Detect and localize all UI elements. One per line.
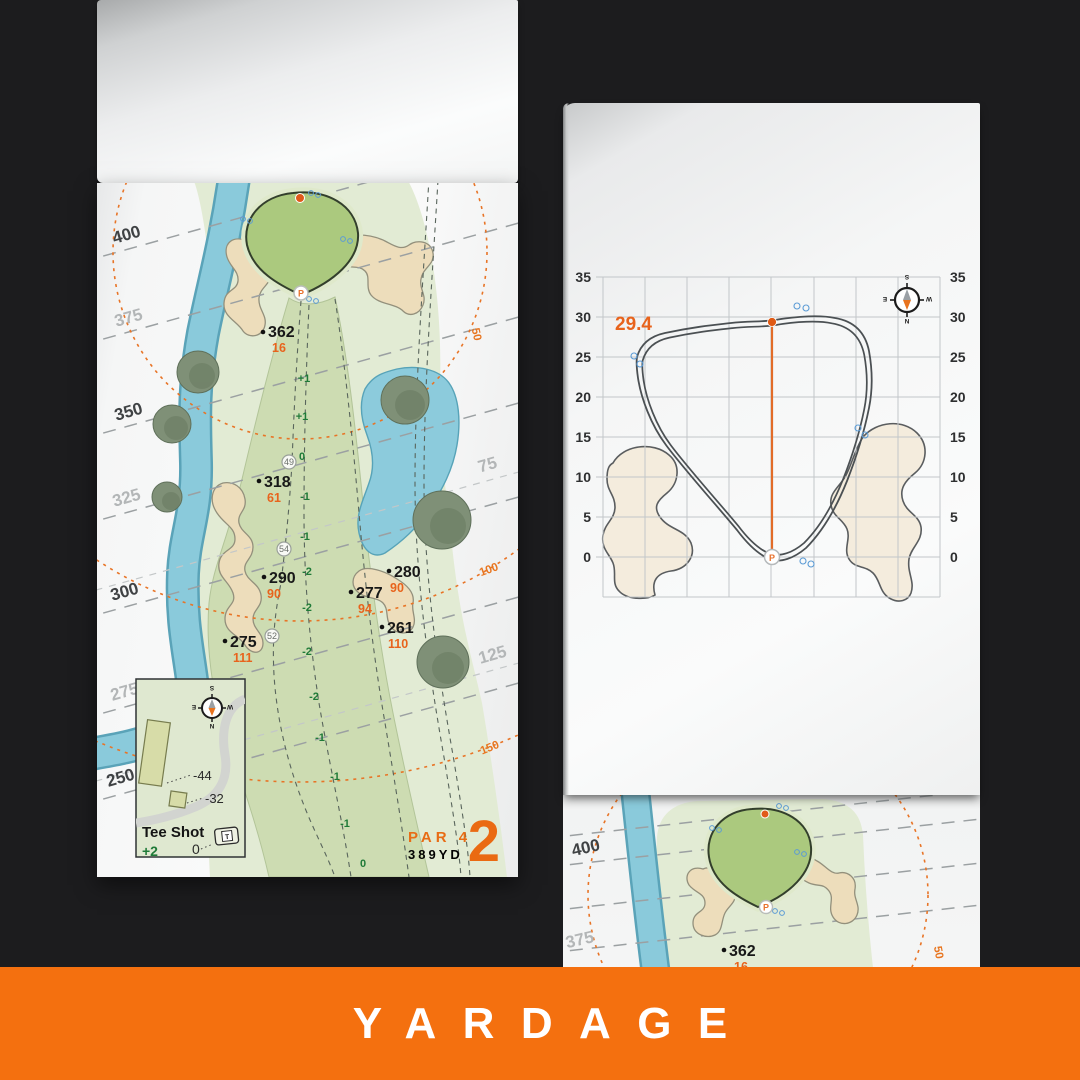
svg-text:W: W <box>925 295 932 302</box>
tee-shot-slope: +2 <box>142 843 158 859</box>
svg-text:10: 10 <box>575 469 591 485</box>
tee-zero: 0 <box>192 841 200 857</box>
svg-text:16: 16 <box>272 341 286 355</box>
hole-number: 2 <box>468 809 500 874</box>
svg-text:S: S <box>904 273 909 280</box>
svg-text:375: 375 <box>112 305 145 331</box>
pin-depth-value: 29.4 <box>615 314 652 335</box>
svg-text:W: W <box>226 703 233 710</box>
svg-text:250: 250 <box>104 765 137 791</box>
svg-text:25: 25 <box>950 349 966 365</box>
flipped-page-back <box>97 0 518 183</box>
svg-text:-2: -2 <box>302 602 312 614</box>
pin-dot <box>761 810 769 818</box>
axis-labels-right: 35 30 25 20 15 10 5 0 <box>950 269 966 565</box>
svg-text:15: 15 <box>950 429 966 445</box>
green-detail-page: 35 30 25 20 15 10 5 0 35 30 25 20 15 10 … <box>563 103 980 795</box>
green-outline <box>637 316 872 560</box>
svg-text:362: 362 <box>268 324 295 341</box>
compass-icon: N E S W <box>882 273 932 324</box>
hole-map-art: P 49 54 52 +1 +1 0 -1 -1 <box>97 183 518 877</box>
banner-title: YARDAGE <box>326 999 753 1049</box>
svg-text:15: 15 <box>575 429 591 445</box>
pin-marker: P <box>760 901 773 914</box>
svg-text:N: N <box>904 317 909 324</box>
svg-text:300: 300 <box>108 579 141 605</box>
svg-text:-1: -1 <box>300 531 310 543</box>
pin-marker: P <box>294 286 308 300</box>
svg-text:30: 30 <box>575 309 591 325</box>
svg-text:61: 61 <box>267 491 281 505</box>
svg-text:375: 375 <box>564 927 596 952</box>
svg-text:350: 350 <box>112 399 145 425</box>
greenside-bunkers <box>603 424 925 601</box>
svg-text:318: 318 <box>264 474 291 491</box>
checkpoint-52: 52 <box>267 631 277 641</box>
svg-text:94: 94 <box>358 602 372 616</box>
svg-text:400: 400 <box>110 222 143 248</box>
checkpoint-54: 54 <box>279 544 289 554</box>
par-label: PAR 4 <box>408 829 471 846</box>
svg-text:0: 0 <box>583 549 591 565</box>
short-tee-value: -32 <box>205 791 224 806</box>
tee-shot-title: Tee Shot <box>142 824 204 841</box>
yardage-book-left: P 49 54 52 +1 +1 0 -1 -1 <box>97 0 518 877</box>
svg-text:0: 0 <box>299 451 305 463</box>
svg-text:0: 0 <box>360 858 366 870</box>
svg-text:-2: -2 <box>302 646 312 658</box>
yards-label: 389YD <box>408 847 463 862</box>
axis-labels-left: 35 30 25 20 15 10 5 0 <box>575 269 591 565</box>
svg-text:280: 280 <box>394 564 421 581</box>
svg-text:+1: +1 <box>296 411 309 423</box>
svg-text:5: 5 <box>950 509 958 525</box>
svg-text:290: 290 <box>269 570 296 587</box>
svg-text:100: 100 <box>478 561 500 579</box>
svg-text:261: 261 <box>387 620 414 637</box>
svg-text:325: 325 <box>110 485 143 511</box>
svg-text:400: 400 <box>570 835 602 860</box>
svg-text:35: 35 <box>575 269 591 285</box>
svg-text:111: 111 <box>233 651 253 665</box>
tee-shot-inset: -44 -32 Tee Shot +2 0 T <box>136 679 245 859</box>
yardage-banner: YARDAGE <box>0 967 1080 1080</box>
contour-labels: 400 375 <box>564 835 602 952</box>
pin-marker: P <box>765 550 780 565</box>
svg-text:110: 110 <box>388 637 408 651</box>
pin-dot <box>768 318 777 327</box>
bunker-right <box>831 424 925 601</box>
svg-text:S: S <box>209 684 214 691</box>
svg-text:10: 10 <box>950 469 966 485</box>
svg-text:-1: -1 <box>300 491 310 503</box>
arc-label: 50 <box>931 945 945 960</box>
svg-text:35: 35 <box>950 269 966 285</box>
checkpoint-49: 49 <box>284 457 294 467</box>
green-detail-art: 35 30 25 20 15 10 5 0 35 30 25 20 15 10 … <box>563 103 980 795</box>
svg-text:-1: -1 <box>330 771 340 783</box>
svg-text:50: 50 <box>469 327 483 342</box>
svg-text:90: 90 <box>390 581 404 595</box>
svg-text:5: 5 <box>583 509 591 525</box>
yardage-book-scene: P 49 54 52 +1 +1 0 -1 -1 <box>0 0 1080 1080</box>
svg-text:-1: -1 <box>340 818 350 830</box>
pin-letter: P <box>298 289 304 299</box>
pin-letter: P <box>769 553 775 563</box>
svg-text:E: E <box>191 703 196 710</box>
svg-text:-2: -2 <box>302 566 312 578</box>
svg-text:25: 25 <box>575 349 591 365</box>
yardage-book-right: 35 30 25 20 15 10 5 0 35 30 25 20 15 10 … <box>563 103 980 1080</box>
svg-text:125: 125 <box>476 642 509 668</box>
svg-text:90: 90 <box>267 587 281 601</box>
long-tee-value: -44 <box>193 768 212 783</box>
svg-text:-1: -1 <box>315 732 325 744</box>
pin-dot <box>296 194 305 203</box>
svg-text:+1: +1 <box>298 373 311 385</box>
svg-text:N: N <box>209 722 214 729</box>
svg-text:20: 20 <box>575 389 591 405</box>
tee-marker-icon: T <box>214 827 239 845</box>
svg-text:P: P <box>763 903 769 913</box>
hole-map-page: P 49 54 52 +1 +1 0 -1 -1 <box>97 183 518 877</box>
svg-text:275: 275 <box>230 634 257 651</box>
svg-text:0: 0 <box>950 549 958 565</box>
bunker-left <box>603 447 693 599</box>
svg-text:20: 20 <box>950 389 966 405</box>
svg-text:E: E <box>882 295 887 302</box>
svg-text:277: 277 <box>356 585 383 602</box>
svg-text:75: 75 <box>476 453 499 476</box>
svg-text:-2: -2 <box>309 691 319 703</box>
svg-text:362: 362 <box>729 943 756 960</box>
svg-text:30: 30 <box>950 309 966 325</box>
